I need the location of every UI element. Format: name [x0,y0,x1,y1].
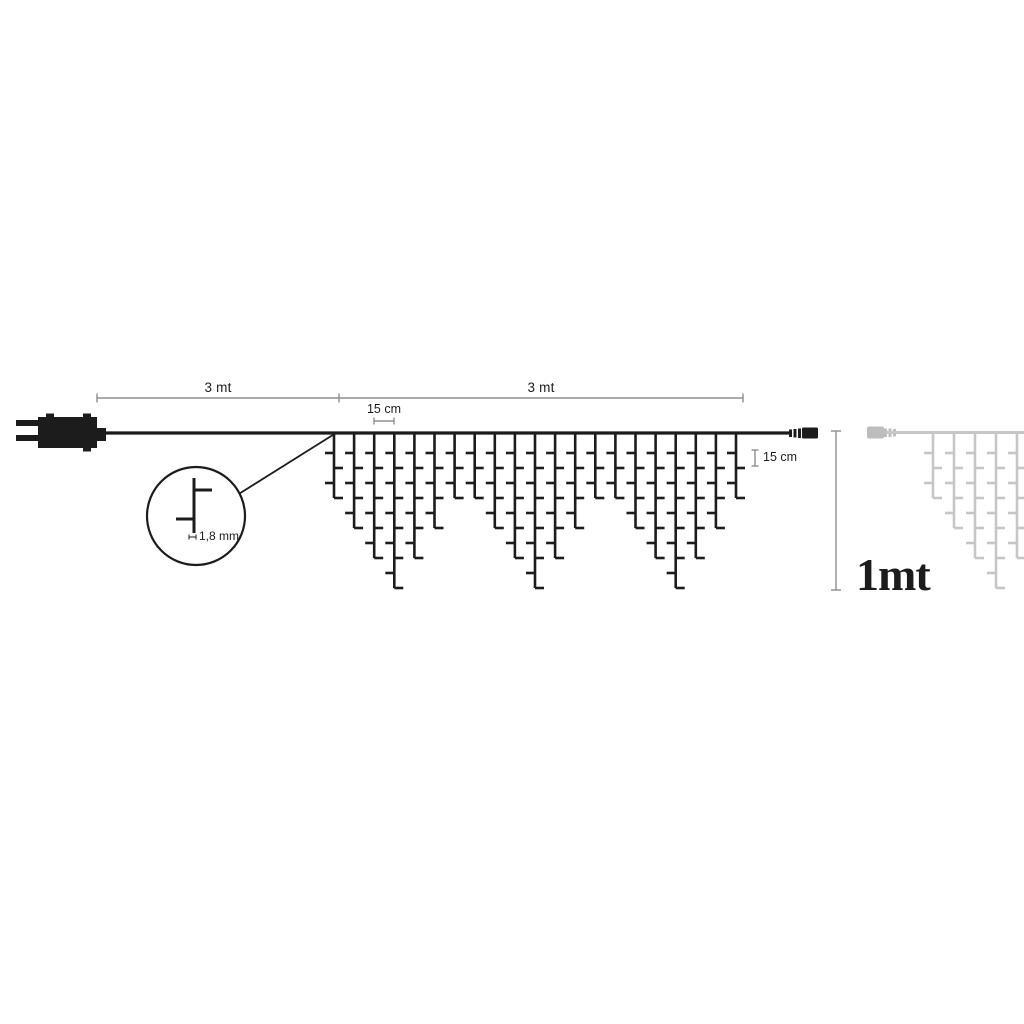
detail-magnifier [147,433,336,565]
wire-diameter-label: 1,8 mm [199,529,239,543]
curtain-height-label: 1mt [856,552,930,598]
plug-prong [16,420,40,426]
strand-spacing-label: 15 cm [354,402,414,416]
lead-length-label: 3 mt [97,380,339,395]
power-plug [16,414,106,452]
strand-spacing-dimension [374,418,394,425]
drop-spacing-dimension [752,450,759,466]
plug-prong [16,435,40,441]
run-length-label: 3 mt [339,380,743,395]
height-dimension-line [831,431,841,590]
icicle-curtain [325,433,745,588]
diagram-canvas [0,0,1024,1024]
icicle-lights-diagram: 3 mt 3 mt 15 cm 15 cm 1,8 mm 1mt [0,0,1024,1024]
magnifier-pointer-line [234,433,336,497]
end-connector [789,428,818,439]
ghost-icicle-curtain [924,433,1024,588]
magnifier-circle [147,467,245,565]
plug-body [38,417,97,448]
drop-spacing-label: 15 cm [763,450,797,464]
